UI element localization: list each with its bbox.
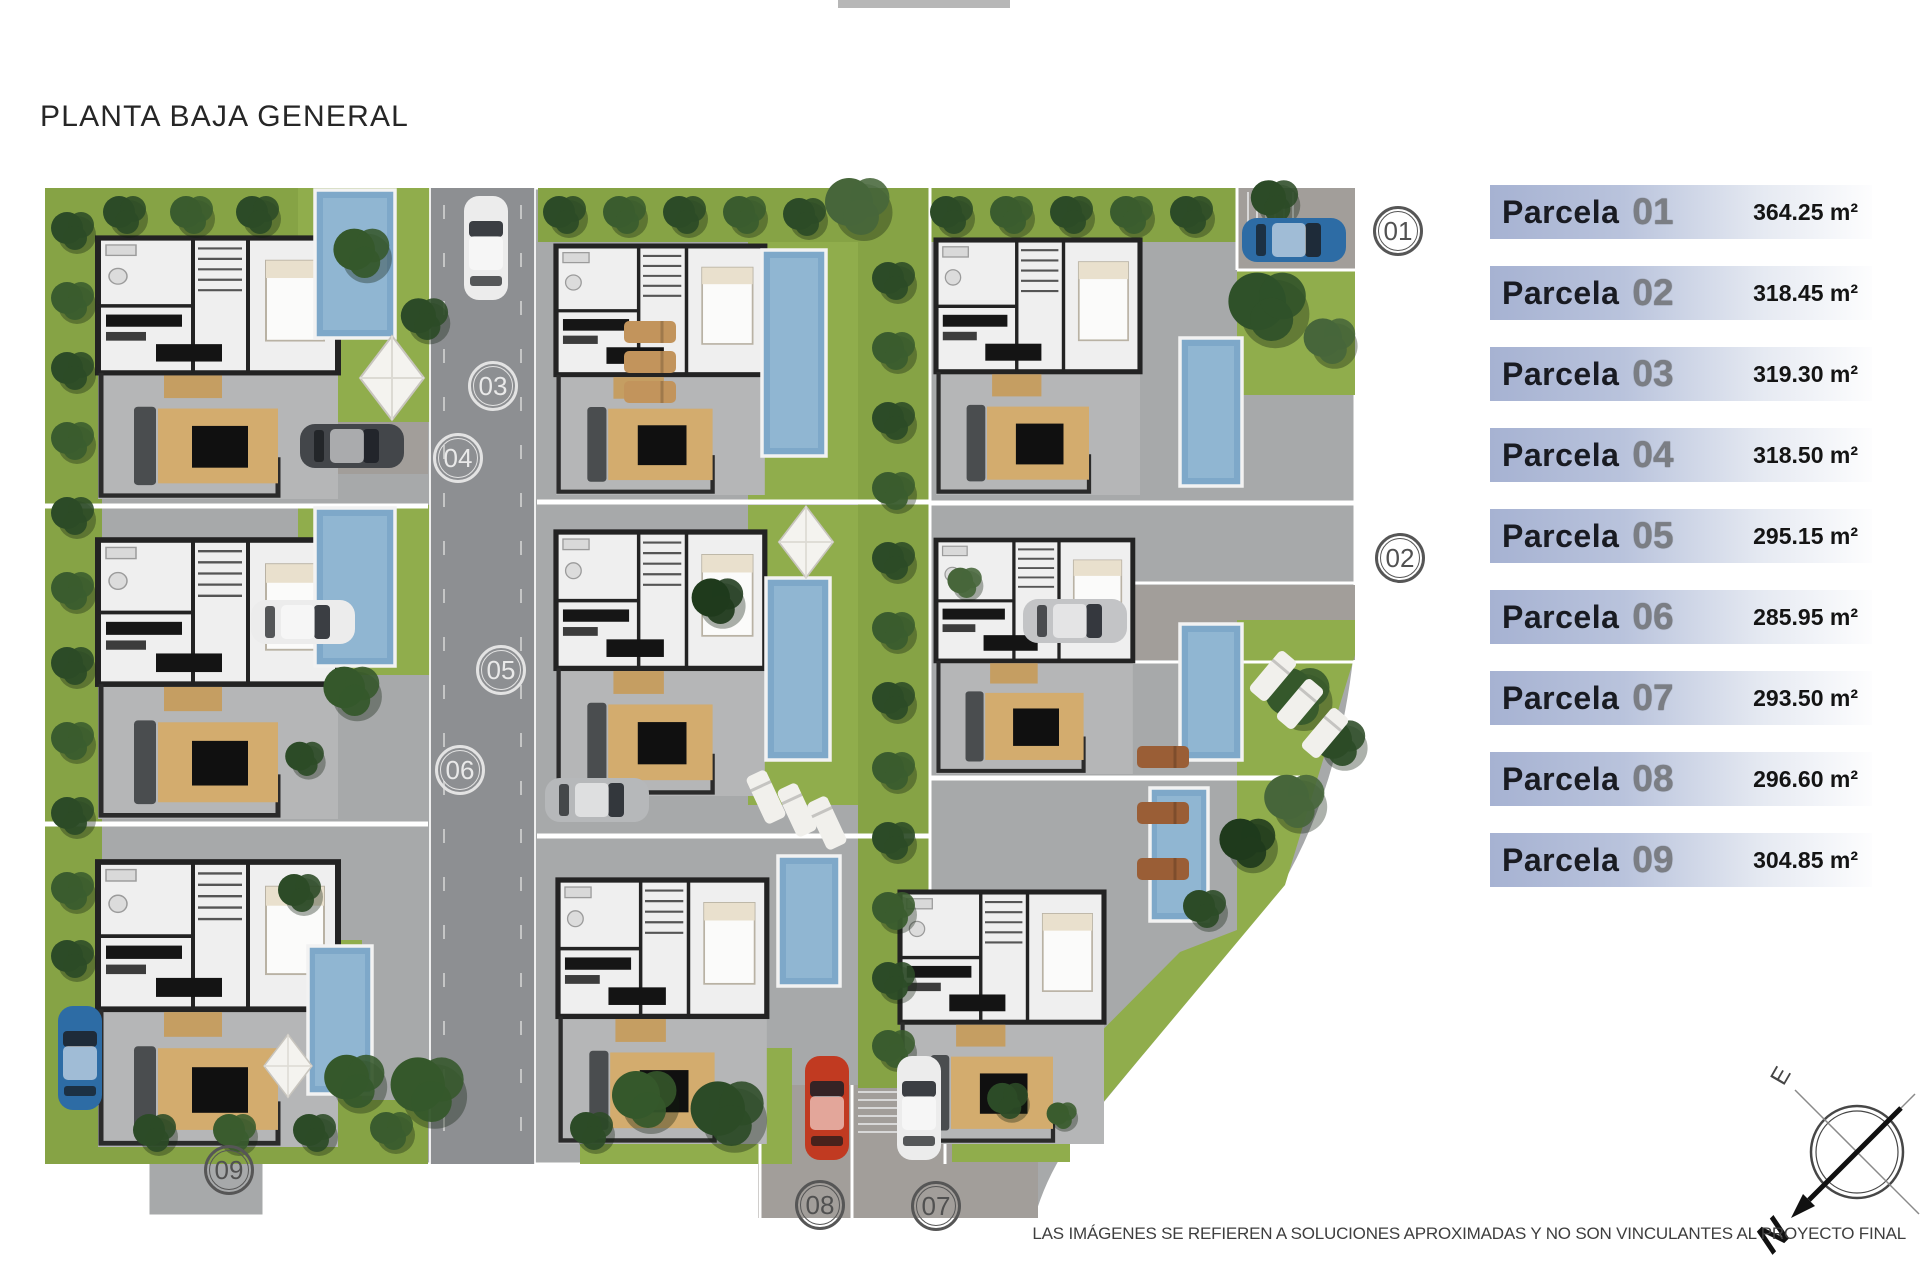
legend-area: 304.85 m²: [1753, 847, 1858, 874]
lounger: [1137, 746, 1189, 768]
legend-number: 05: [1632, 515, 1673, 557]
legend-label: Parcela: [1502, 680, 1619, 717]
plot-marker-02: 02: [1375, 533, 1425, 583]
legend-label: Parcela: [1502, 761, 1619, 798]
legend-number: 02: [1632, 272, 1673, 314]
legend-label: Parcela: [1502, 599, 1619, 636]
legend-number: 01: [1632, 191, 1673, 233]
plot-marker-05: 05: [476, 645, 526, 695]
legend-area: 364.25 m²: [1753, 199, 1858, 226]
legend-area: 285.95 m²: [1753, 604, 1858, 631]
disclaimer-text: LAS IMÁGENES SE REFIEREN A SOLUCIONES AP…: [1032, 1224, 1906, 1244]
legend-row-parcela-08: Parcela 08 296.60 m²: [1490, 752, 1872, 806]
legend-label: Parcela: [1502, 518, 1619, 555]
plot-marker-08: 08: [795, 1180, 845, 1230]
legend-label: Parcela: [1502, 842, 1619, 879]
top-crop-artifact: [838, 0, 1010, 8]
car-silver: [1023, 599, 1127, 643]
legend-row-parcela-03: Parcela 03 319.30 m²: [1490, 347, 1872, 401]
legend-label: Parcela: [1502, 356, 1619, 393]
house-parcela-01: [936, 240, 1140, 495]
plot-marker-03: 03: [468, 361, 518, 411]
legend-area: 318.45 m²: [1753, 280, 1858, 307]
legend-row-parcela-05: Parcela 05 295.15 m²: [1490, 509, 1872, 563]
legend-label: Parcela: [1502, 194, 1619, 231]
legend-number: 06: [1632, 596, 1673, 638]
lounger: [1137, 858, 1189, 880]
compass-east-label: E: [1765, 1062, 1796, 1089]
lounger: [1137, 802, 1189, 824]
legend-area: 296.60 m²: [1753, 766, 1858, 793]
legend-row-parcela-09: Parcela 09 304.85 m²: [1490, 833, 1872, 887]
legend-area: 293.50 m²: [1753, 685, 1858, 712]
car-red: [805, 1056, 849, 1160]
plot-marker-04: 04: [433, 433, 483, 483]
lounger: [624, 351, 676, 373]
plot-marker-09: 09: [204, 1145, 254, 1195]
legend-area: 319.30 m²: [1753, 361, 1858, 388]
car-silver: [545, 778, 649, 822]
legend-number: 09: [1632, 839, 1673, 881]
car-blue: [58, 1006, 102, 1110]
legend-label: Parcela: [1502, 437, 1619, 474]
legend-number: 03: [1632, 353, 1673, 395]
legend-row-parcela-01: Parcela 01 364.25 m²: [1490, 185, 1872, 239]
legend-row-parcela-02: Parcela 02 318.45 m²: [1490, 266, 1872, 320]
legend-row-parcela-04: Parcela 04 318.50 m²: [1490, 428, 1872, 482]
plot-marker-01: 01: [1373, 206, 1423, 256]
car-suv-dark: [300, 424, 404, 468]
legend-label: Parcela: [1502, 275, 1619, 312]
lounger: [624, 381, 676, 403]
car-white: [897, 1056, 941, 1160]
plot-marker-06: 06: [435, 745, 485, 795]
legend-area: 318.50 m²: [1753, 442, 1858, 469]
legend-row-parcela-07: Parcela 07 293.50 m²: [1490, 671, 1872, 725]
plot-marker-07: 07: [911, 1181, 961, 1231]
legend-number: 08: [1632, 758, 1673, 800]
house-parcela-05: [556, 532, 765, 796]
legend-number: 07: [1632, 677, 1673, 719]
lounger: [624, 321, 676, 343]
houses: [98, 238, 1140, 1147]
legend-number: 04: [1632, 434, 1673, 476]
car-white: [464, 196, 508, 300]
legend-area: 295.15 m²: [1753, 523, 1858, 550]
car-blue: [1242, 218, 1346, 262]
parcel-legend: Parcela 01 364.25 m² Parcela 02 318.45 m…: [1490, 185, 1872, 914]
car-white: [251, 600, 355, 644]
legend-row-parcela-06: Parcela 06 285.95 m²: [1490, 590, 1872, 644]
